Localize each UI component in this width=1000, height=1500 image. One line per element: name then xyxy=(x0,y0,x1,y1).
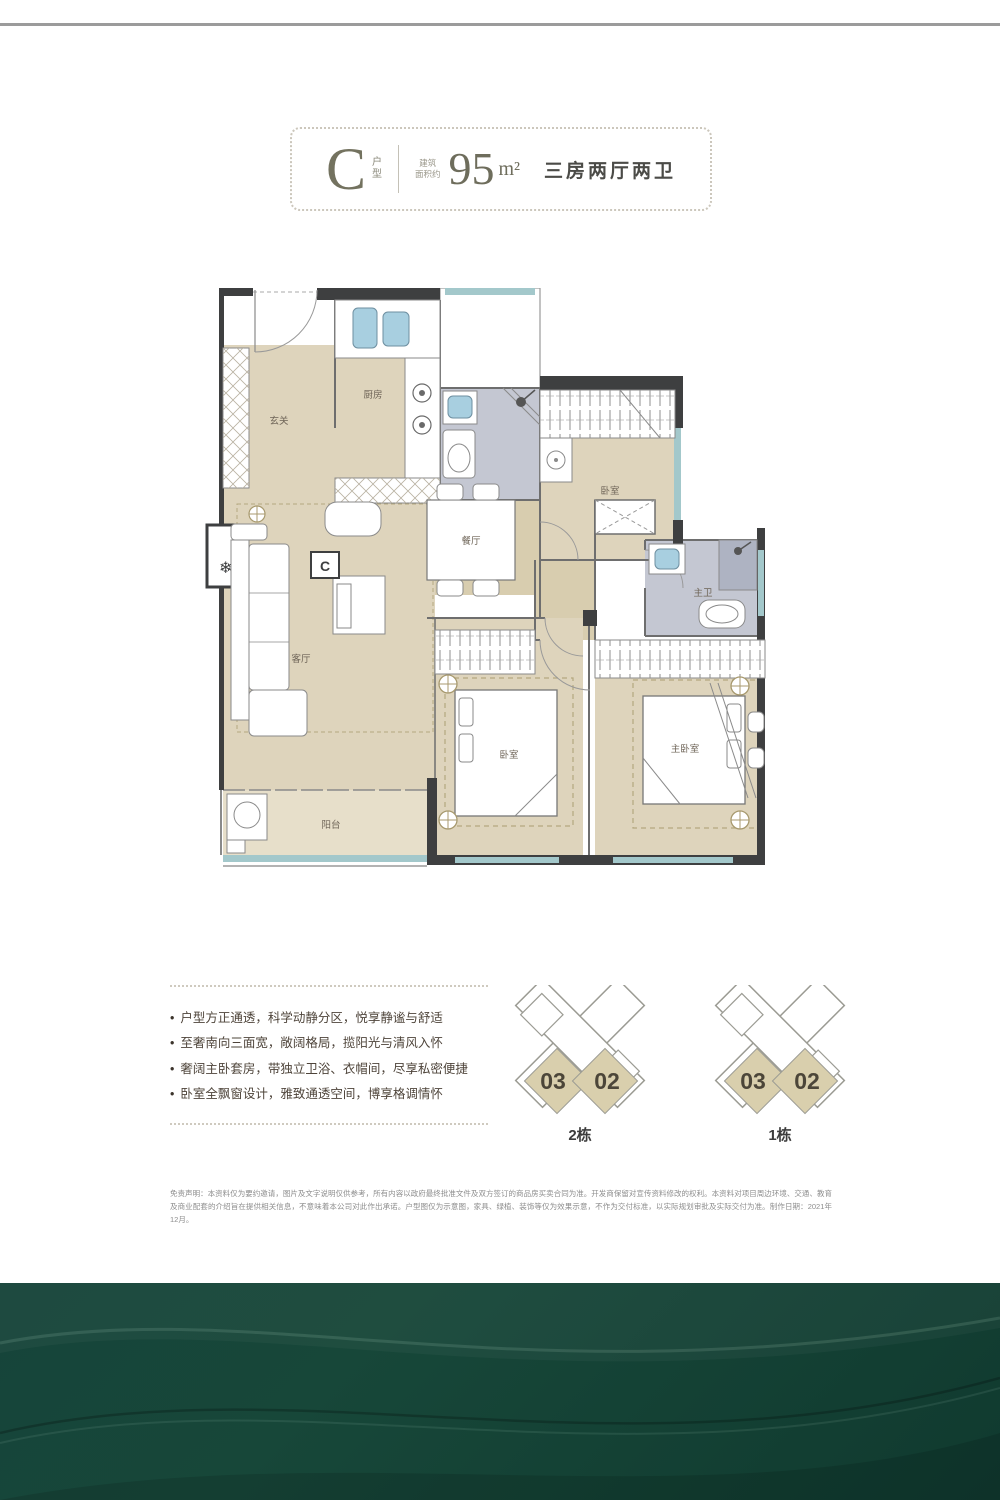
feature-item: •至奢南向三面宽，敞阔格局，揽阳光与清风入怀 xyxy=(170,1035,488,1051)
room-label-living: 客厅 xyxy=(291,653,311,665)
footer-wave-graphic xyxy=(0,1283,1000,1500)
unit-label: 户型 xyxy=(372,157,382,182)
disclaimer-text: 免责声明：本资料仅为要约邀请，图片及文字说明仅供参考，所有内容以政府最终批准文件… xyxy=(170,1188,832,1226)
building-name: 1栋 xyxy=(695,1124,865,1145)
room-label-master-bedroom: 主卧室 xyxy=(671,743,700,755)
floor-plan: ❄ C 玄关 厨房 餐厅 客厅 阳台 卧室 主卫 卧室 主卧室 xyxy=(205,288,770,873)
unit-number-02: 02 xyxy=(794,1068,820,1094)
room-label-dining: 餐厅 xyxy=(461,535,481,547)
area-label: 建筑 面积约 xyxy=(415,158,441,180)
building-name: 2栋 xyxy=(495,1124,665,1145)
ac-snowflake-icon: ❄ xyxy=(219,560,232,577)
title-divider xyxy=(398,145,399,193)
plan-marker: C xyxy=(320,558,330,574)
room-label-foyer: 玄关 xyxy=(269,415,289,427)
area-value: 95 xyxy=(448,146,494,192)
footer-banner xyxy=(0,1283,1000,1500)
room-label-bedroom-south: 卧室 xyxy=(499,749,518,761)
feature-item: •户型方正通透，科学动静分区，悦享静谧与舒适 xyxy=(170,1010,488,1026)
unit-number-03: 03 xyxy=(540,1068,566,1094)
bullet-icon: • xyxy=(170,1011,174,1025)
room-label-bedroom-north: 卧室 xyxy=(600,485,619,497)
unit-letter: C xyxy=(326,139,366,199)
top-divider-line xyxy=(0,23,1000,26)
feature-list: •户型方正通透，科学动静分区，悦享静谧与舒适 •至奢南向三面宽，敞阔格局，揽阳光… xyxy=(170,985,488,1125)
bullet-icon: • xyxy=(170,1062,174,1076)
room-label-balcony: 阳台 xyxy=(321,819,340,831)
siteplan-building-2: 03 02 2栋 xyxy=(495,985,665,1145)
flyer-page: C 户型 建筑 面积约 95 m² 三房两厅两卫 xyxy=(0,0,1000,1500)
layout-text: 三房两厅两卫 xyxy=(544,156,676,183)
siteplan-building-1: 03 02 1栋 xyxy=(695,985,865,1145)
feature-item: •卧室全飘窗设计，雅致通透空间，博享格调情怀 xyxy=(170,1086,488,1102)
unit-title-box: C 户型 建筑 面积约 95 m² 三房两厅两卫 xyxy=(290,127,712,211)
unit-number-03: 03 xyxy=(740,1068,766,1094)
area-unit: m² xyxy=(498,158,520,181)
bullet-icon: • xyxy=(170,1087,174,1101)
feature-item: •奢阔主卧套房，带独立卫浴、衣帽间，尽享私密便捷 xyxy=(170,1061,488,1077)
bullet-icon: • xyxy=(170,1036,174,1050)
room-label-kitchen: 厨房 xyxy=(363,389,382,401)
unit-number-02: 02 xyxy=(594,1068,620,1094)
room-label-master-bath: 主卫 xyxy=(693,587,713,599)
